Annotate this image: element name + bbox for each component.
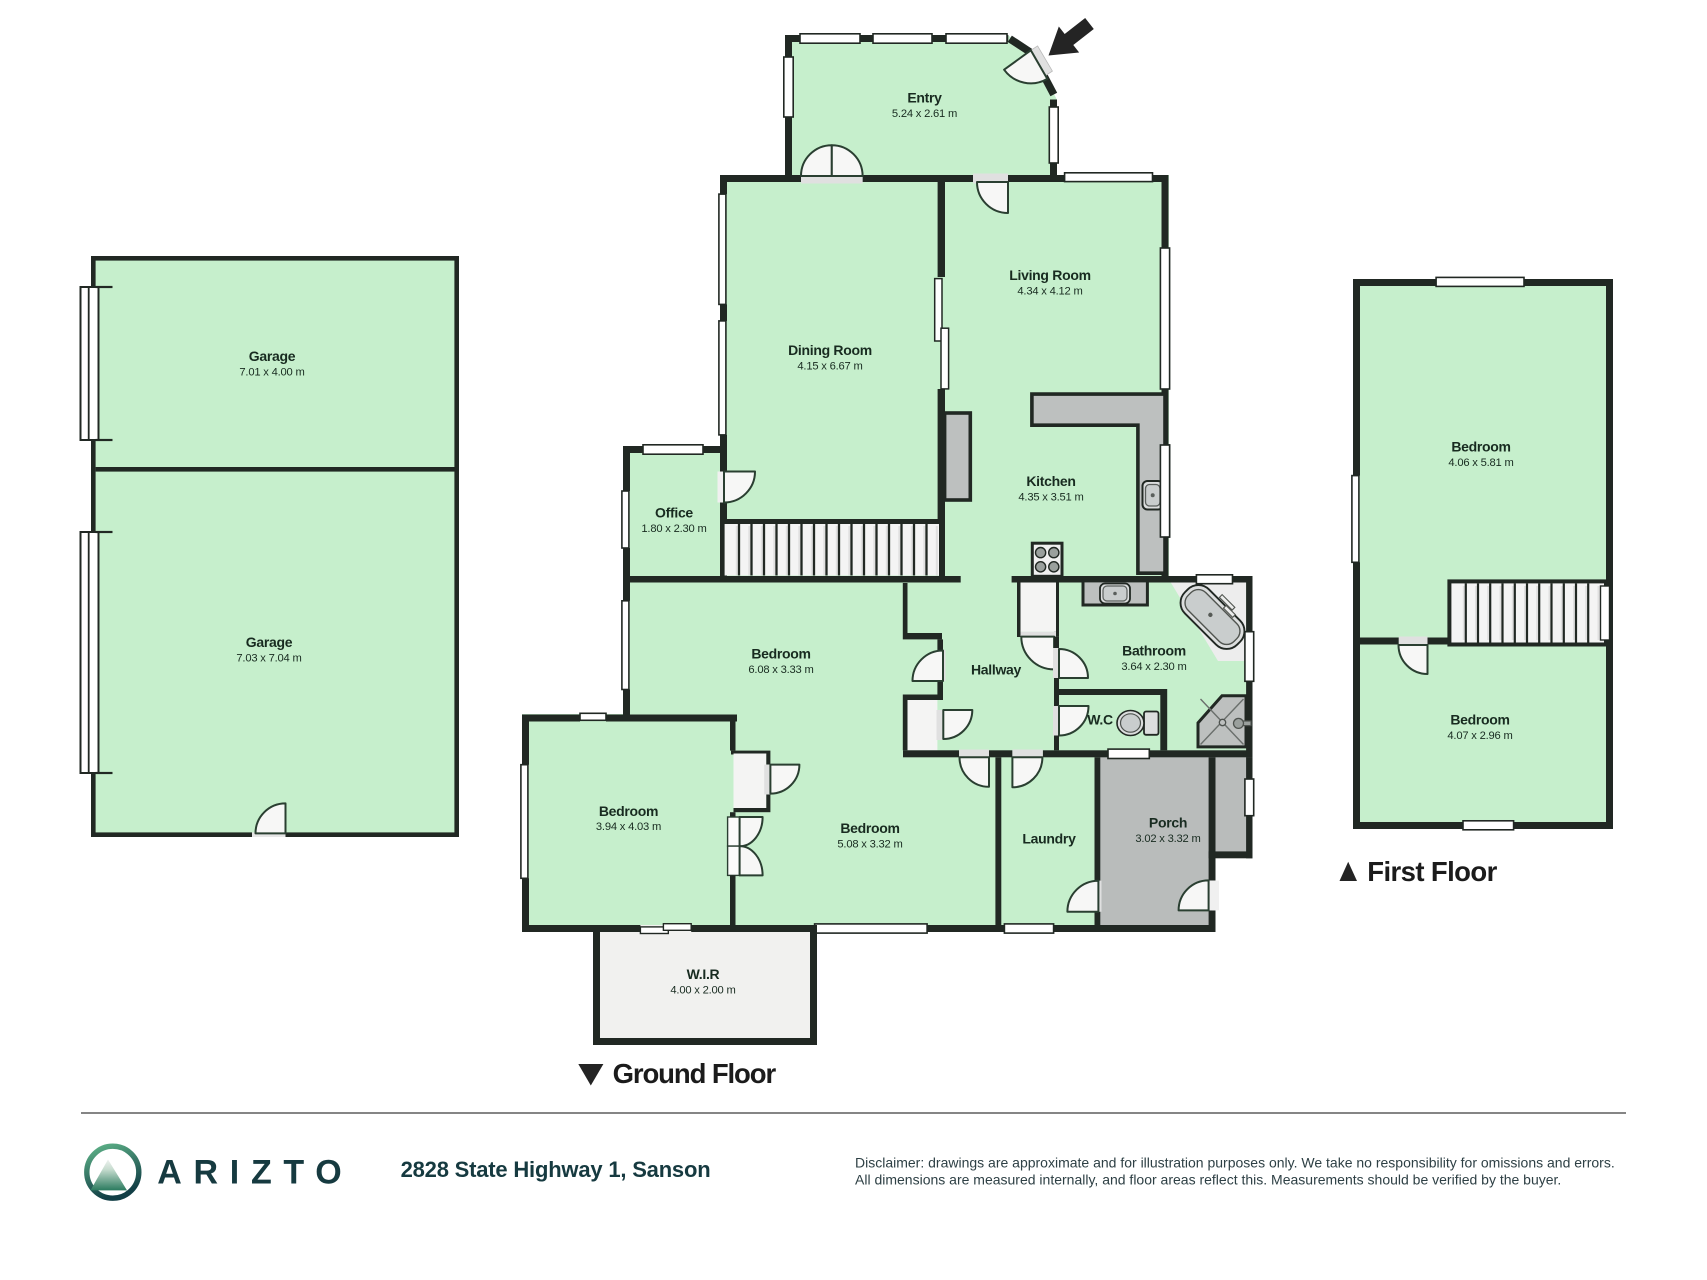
svg-text:5.24 x 2.61 m: 5.24 x 2.61 m [892, 108, 957, 120]
svg-text:Bedroom: Bedroom [840, 820, 899, 836]
svg-text:5.08 x 3.32 m: 5.08 x 3.32 m [837, 839, 902, 851]
svg-text:3.02 x 3.32 m: 3.02 x 3.32 m [1135, 833, 1200, 845]
svg-text:2828 State Highway 1, Sanson: 2828 State Highway 1, Sanson [401, 1157, 711, 1182]
svg-text:Office: Office [655, 505, 693, 521]
svg-text:Disclaimer: drawings are appro: Disclaimer: drawings are approximate and… [855, 1155, 1615, 1171]
svg-text:First Floor: First Floor [1367, 856, 1497, 887]
svg-text:Dining Room: Dining Room [788, 342, 872, 358]
svg-text:Entry: Entry [907, 90, 942, 106]
svg-text:Hallway: Hallway [971, 662, 1022, 678]
svg-text:4.15 x 6.67 m: 4.15 x 6.67 m [797, 361, 862, 373]
svg-text:4.34 x 4.12 m: 4.34 x 4.12 m [1017, 286, 1082, 298]
svg-text:1.80 x 2.30 m: 1.80 x 2.30 m [641, 523, 706, 535]
svg-text:4.35 x 3.51 m: 4.35 x 3.51 m [1018, 492, 1083, 504]
svg-text:Living Room: Living Room [1009, 267, 1090, 283]
svg-text:Garage: Garage [246, 634, 293, 650]
svg-text:7.01 x 4.00 m: 7.01 x 4.00 m [239, 367, 304, 379]
svg-text:Bathroom: Bathroom [1122, 643, 1186, 659]
svg-text:Ground Floor: Ground Floor [613, 1058, 777, 1089]
svg-text:All dimensions are measured in: All dimensions are measured internally, … [855, 1172, 1561, 1188]
svg-text:3.94 x 4.03 m: 3.94 x 4.03 m [596, 821, 661, 833]
svg-text:Kitchen: Kitchen [1026, 473, 1075, 489]
svg-text:Bedroom: Bedroom [599, 803, 658, 819]
svg-text:Bedroom: Bedroom [1451, 439, 1510, 455]
svg-text:Porch: Porch [1149, 815, 1187, 831]
svg-text:Laundry: Laundry [1022, 831, 1076, 847]
svg-text:Bedroom: Bedroom [1450, 712, 1509, 728]
svg-text:ARIZTO: ARIZTO [157, 1153, 353, 1191]
svg-text:Garage: Garage [249, 348, 296, 364]
svg-text:4.07 x 2.96 m: 4.07 x 2.96 m [1447, 730, 1512, 742]
svg-text:7.03 x 7.04 m: 7.03 x 7.04 m [236, 653, 301, 665]
svg-text:4.06 x 5.81 m: 4.06 x 5.81 m [1448, 457, 1513, 469]
svg-text:4.00 x 2.00 m: 4.00 x 2.00 m [670, 985, 735, 997]
svg-text:W.I.R: W.I.R [687, 966, 720, 982]
svg-text:W.C: W.C [1087, 712, 1113, 728]
svg-text:6.08 x 3.33 m: 6.08 x 3.33 m [748, 664, 813, 676]
svg-text:Bedroom: Bedroom [751, 646, 810, 662]
svg-text:3.64 x 2.30 m: 3.64 x 2.30 m [1121, 661, 1186, 673]
